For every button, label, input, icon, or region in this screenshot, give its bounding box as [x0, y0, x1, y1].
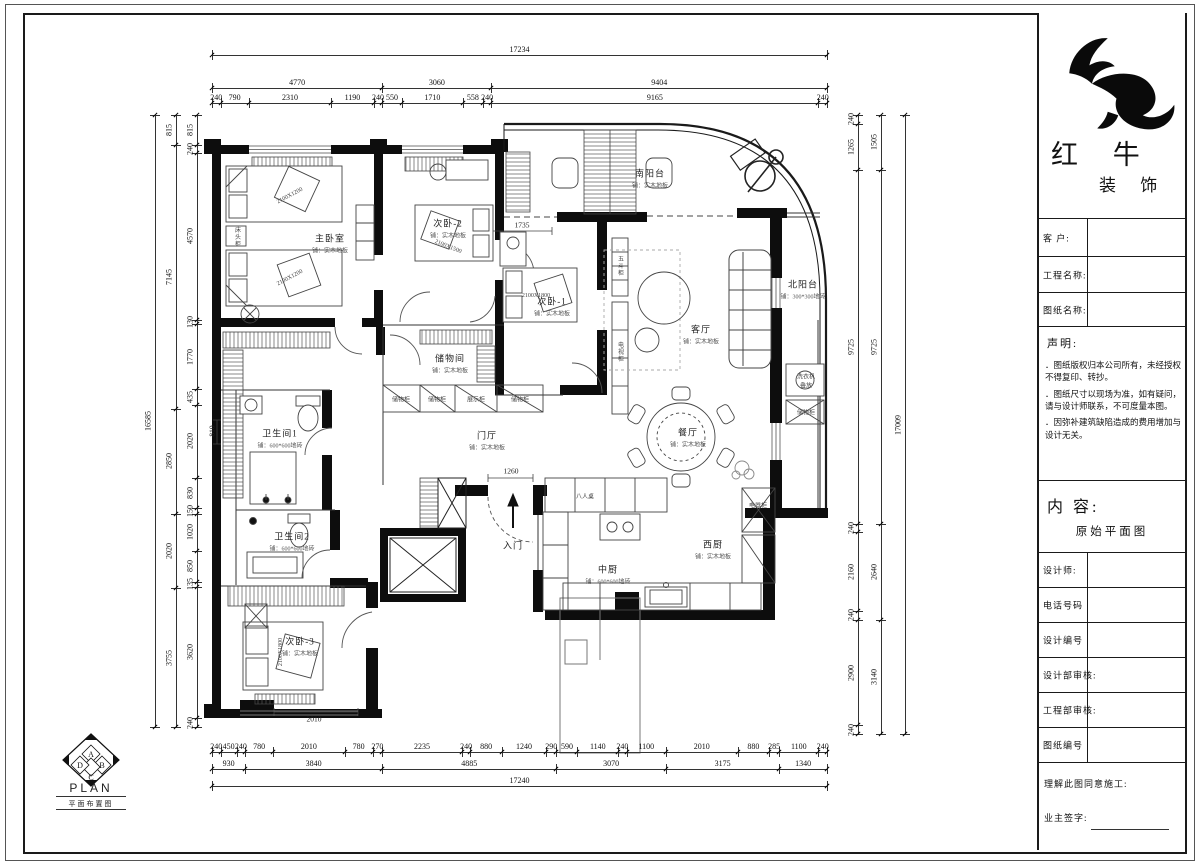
dim-value: 240 [481, 93, 493, 102]
dim-value: 550 [386, 93, 398, 102]
furniture-label: 储物柜 [428, 395, 446, 404]
dim-value: 240 [460, 742, 472, 751]
dim-value: 3140 [870, 669, 879, 685]
dim-value: 135 [186, 578, 195, 590]
content-section: 内 容: 原始平面图 [1039, 480, 1185, 552]
dim-value: 558 [467, 93, 479, 102]
dim-value: 4885 [461, 759, 477, 768]
compass-letter-b: B [99, 761, 104, 770]
dim-value: 240 [186, 717, 195, 729]
room-label-入门: 入门 [503, 539, 523, 552]
plan-logo-rule [56, 809, 126, 810]
statement-item: ．图纸尺寸以现场为准，如有疑问，请与设计师联系，不可度量本图。 [1045, 388, 1181, 413]
dim-value: 285 [768, 742, 780, 751]
dim-value: 790 [229, 93, 241, 102]
dim-value: 780 [253, 742, 265, 751]
dim-value: 2235 [414, 742, 430, 751]
dim-value: 1505 [870, 134, 879, 150]
dim-value: 590 [561, 742, 573, 751]
field-customer: 客 户: [1039, 218, 1185, 256]
dim-value: 2900 [847, 665, 856, 681]
dim-value: 240 [210, 742, 222, 751]
dim-value: 240 [616, 742, 628, 751]
dim-value: 850 [186, 560, 195, 572]
furniture-label: 五斗柜 [616, 256, 625, 277]
mini-dim: 2010 [307, 715, 322, 724]
dim-value: 290 [545, 742, 557, 751]
furniture-label: 2100X1500 [434, 239, 463, 255]
dim-value: 2020 [186, 433, 195, 449]
dim-value: 9725 [870, 339, 879, 355]
dim-value: 1100 [791, 742, 807, 751]
dim-value: 240 [817, 742, 829, 751]
dim-value: 815 [186, 124, 195, 136]
dim-value: 1265 [847, 139, 856, 155]
statement-item: ．因弥补建筑缺陷造成的费用增加与设计无关。 [1045, 416, 1181, 441]
dim-value: 2020 [165, 543, 174, 559]
dim-value: 1240 [516, 742, 532, 751]
room-label-北阳台: 北阳台铺：300*300地砖 [780, 278, 825, 301]
furniture-label: 电视柜 [616, 342, 625, 363]
dim-value: 240 [210, 93, 222, 102]
dim-value: 240 [817, 93, 829, 102]
dim-value: 16585 [144, 411, 153, 431]
dim-value: 3755 [165, 650, 174, 666]
dim-value: 240 [847, 609, 856, 621]
dim-value: 9165 [647, 93, 663, 102]
field-designer: 设计师: [1039, 552, 1185, 587]
furniture-label: 叠放 [800, 381, 812, 390]
furniture-label: 八人桌 [576, 492, 594, 501]
dim-value: 1190 [345, 93, 361, 102]
dim-value: 17009 [894, 415, 903, 435]
room-label-南阳台: 南阳台铺：实木地板 [632, 167, 668, 190]
dim-value: 150 [186, 505, 195, 517]
furniture-label: 电器柜 [749, 501, 767, 510]
dim-value: 780 [353, 742, 365, 751]
statement-item: ．图纸版权归本公司所有，未经授权不得复印、转抄。 [1045, 359, 1181, 384]
dim-value: 3070 [603, 759, 619, 768]
dim-value: 1770 [186, 349, 195, 365]
dim-value: 240 [847, 724, 856, 736]
dim-value: 240 [235, 742, 247, 751]
dim-value: 3060 [429, 78, 445, 87]
dim-value: 830 [186, 487, 195, 499]
brand-name-2: 装 饰 [1099, 171, 1167, 196]
room-label-主卧室: 主卧室铺：实木地板 [312, 232, 348, 255]
title-block: 红 牛 装 饰 客 户: 工程名称: 图纸名称: 声明: ．图纸版权归本公司所有… [1037, 13, 1185, 850]
furniture-label: 2100X1200 [276, 269, 304, 288]
dim-value: 1100 [638, 742, 654, 751]
room-label-卫生间1: 卫生间1铺：600*600地砖 [257, 427, 302, 450]
dim-value: 1140 [590, 742, 606, 751]
dim-value: 240 [372, 93, 384, 102]
brand-name: 红 牛 [1051, 133, 1154, 172]
dim-value: 9404 [651, 78, 667, 87]
dim-value: 7145 [165, 269, 174, 285]
dim-value: 815 [165, 124, 174, 136]
brand-area: 红 牛 装 饰 [1039, 13, 1185, 218]
field-design-dept-review: 设计部审核: [1039, 657, 1185, 692]
dim-value: 2010 [301, 742, 317, 751]
compass-letter-d: D [77, 761, 83, 770]
agree-text: 理解此图同意施工: [1044, 777, 1128, 790]
bull-logo-icon [1043, 21, 1183, 136]
dim-value: 2010 [694, 742, 710, 751]
field-drawing-no: 图纸编号 [1039, 727, 1185, 762]
dim-value: 930 [223, 759, 235, 768]
field-design-no: 设计编号 [1039, 622, 1185, 657]
room-label-卫生间2: 卫生间2铺：600*600地砖 [269, 530, 314, 553]
owner-sign-label: 业主签字: [1044, 811, 1088, 824]
furniture-label: 床头柜 [233, 227, 242, 248]
field-drawing-name: 图纸名称: [1039, 292, 1185, 326]
dim-value: 4570 [186, 228, 195, 244]
signature-line [1091, 829, 1169, 830]
dim-value: 130 [186, 316, 195, 328]
dim-value: 3175 [715, 759, 731, 768]
dim-value: 1710 [424, 93, 440, 102]
plan-overlay: 1723447703060940424079023101190240550171… [0, 0, 1200, 865]
dim-value: 9725 [847, 339, 856, 355]
dim-value: 880 [480, 742, 492, 751]
dim-value: 435 [186, 391, 195, 403]
dim-value: 2160 [847, 564, 856, 580]
furniture-label: 2100X1800 [522, 293, 550, 299]
plan-logo-title: PLAN [56, 781, 126, 795]
room-label-西厨: 西厨铺：实木地板 [695, 538, 731, 561]
furniture-label: 储物柜 [797, 408, 815, 417]
dim-value: 3620 [186, 644, 195, 660]
furniture-label: 2100X1200 [276, 187, 304, 206]
furniture-label: 洗衣机 [797, 372, 815, 381]
dim-value: 4770 [289, 78, 305, 87]
content-label: 内 容: [1047, 493, 1099, 517]
room-label-门厅: 门厅铺：实木地板 [469, 429, 505, 452]
furniture-label: 2100X1800 [278, 638, 284, 666]
dim-value: 270 [371, 742, 383, 751]
dim-value: 240 [186, 143, 195, 155]
furniture-label: 储物柜 [392, 395, 410, 404]
room-label-次卧-3: 次卧-3铺：实木地板 [282, 635, 318, 658]
drawing-content-title: 原始平面图 [1039, 523, 1185, 539]
room-label-餐厅: 餐厅铺：实木地板 [670, 426, 706, 449]
dim-value: 2850 [165, 453, 174, 469]
plan-logo-rule [56, 796, 126, 797]
signature-section: 理解此图同意施工: 业主签字: [1039, 762, 1185, 850]
dim-value: 2310 [282, 93, 298, 102]
field-phone: 电话号码 [1039, 587, 1185, 622]
field-eng-dept-review: 工程部审核: [1039, 692, 1185, 727]
mini-dim: 810 [208, 425, 217, 436]
dim-value: 880 [747, 742, 759, 751]
mini-dim: 1260 [504, 467, 519, 476]
compass-letter-a: A [88, 750, 94, 759]
room-label-中厨: 中厨铺：600*600地砖 [585, 563, 630, 586]
room-label-储物间: 储物间铺：实木地板 [432, 352, 468, 375]
dim-value: 450 [223, 742, 235, 751]
dim-value: 2640 [870, 564, 879, 580]
furniture-label: 展示柜 [467, 395, 485, 404]
dim-value: 17240 [510, 776, 530, 785]
room-label-次卧-2: 次卧-2铺：实木地板 [430, 217, 466, 240]
dim-value: 3840 [306, 759, 322, 768]
dim-value: 1340 [795, 759, 811, 768]
dim-value: 240 [847, 113, 856, 125]
room-label-客厅: 客厅铺：实木地板 [683, 323, 719, 346]
plan-logo-subtitle: 平面布置图 [56, 799, 126, 809]
dim-value: 17234 [510, 45, 530, 54]
field-project-name: 工程名称: [1039, 256, 1185, 292]
mini-dim: 1735 [515, 221, 530, 230]
statement-heading: 声明: [1047, 337, 1181, 353]
compass-diamond-icon: A B C D [56, 732, 126, 788]
dim-value: 1020 [186, 524, 195, 540]
furniture-label: 储物柜 [511, 395, 529, 404]
statement-section: 声明: ．图纸版权归本公司所有，未经授权不得复印、转抄。 ．图纸尺寸以现场为准，… [1039, 326, 1185, 480]
dim-value: 240 [847, 522, 856, 534]
